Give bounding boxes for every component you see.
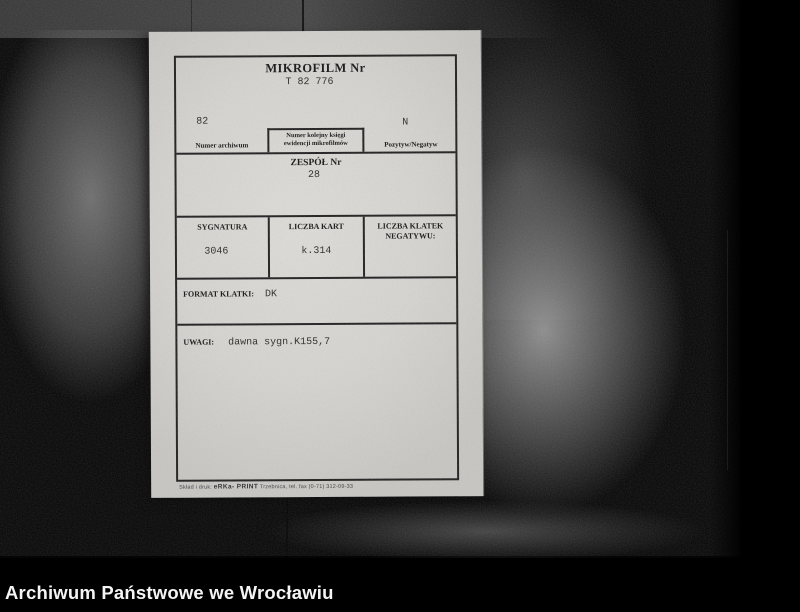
- card-title: MIKROFILM Nr: [176, 56, 455, 76]
- archive-number-value: 82: [196, 117, 208, 128]
- photo-surface: MIKROFILM Nr T 82 776 82 N Numer archiwu…: [0, 0, 800, 612]
- sygnatura-header: SYGNATURA: [177, 217, 268, 232]
- registry-book-label-line2: ewidencji mikrofilmów: [284, 140, 348, 147]
- film-background-right-black: [710, 0, 800, 612]
- liczba-klatek-header-line1: LICZBA KLATEK: [377, 221, 443, 230]
- printer-note-rest: Trzebnica, tel. fax (0-71) 312-09-33: [260, 484, 353, 490]
- archive-caption: Archiwum Państwowe we Wrocławiu: [5, 582, 334, 604]
- zespol-section: ZESPÓŁ Nr 28: [176, 151, 455, 215]
- positive-negative-value: N: [402, 118, 408, 129]
- film-scratch: [302, 0, 304, 32]
- format-klatki-label: FORMAT KLATKI:: [183, 289, 254, 298]
- zespol-value: 28: [175, 169, 454, 181]
- liczba-klatek-cell: LICZBA KLATEK NEGATYWU:: [365, 216, 456, 276]
- liczba-klatek-header: LICZBA KLATEK NEGATYWU:: [365, 216, 456, 241]
- sygnatura-value: 3046: [171, 246, 262, 257]
- zespol-label: ZESPÓŁ Nr: [176, 157, 455, 168]
- printer-note-brand: eRKa- PRINT: [214, 483, 259, 490]
- uwagi-value: dawna sygn.K155,7: [228, 337, 330, 349]
- archive-number-label: Numer archiwum: [176, 141, 267, 149]
- card-frame: MIKROFILM Nr T 82 776 82 N Numer archiwu…: [174, 54, 459, 481]
- sygnatura-cell: SYGNATURA 3046: [177, 217, 268, 277]
- printer-note-prefix: Skład i druk:: [179, 485, 212, 491]
- uwagi-section: UWAGI: dawna sygn.K155,7: [177, 322, 457, 479]
- liczba-klatek-header-line2: NEGATYWU:: [385, 231, 435, 240]
- format-klatki-value: DK: [265, 289, 277, 300]
- positive-negative-label: Pozytyw/Negatyw: [366, 140, 455, 148]
- film-scratch: [727, 230, 728, 470]
- film-background-right: [468, 40, 758, 540]
- microfilm-card: MIKROFILM Nr T 82 776 82 N Numer archiwu…: [149, 30, 483, 498]
- film-background-right-upper: [468, 0, 718, 320]
- signature-section: SYGNATURA 3046 LICZBA KART k.314 LICZBA …: [177, 214, 456, 277]
- card-header-section: MIKROFILM Nr T 82 776 82 N Numer archiwu…: [176, 56, 455, 152]
- registry-book-label: Numer kolejny księgi ewidencji mikrofilm…: [267, 128, 364, 153]
- film-background-left: [0, 30, 165, 470]
- liczba-kart-cell: LICZBA KART k.314: [268, 217, 365, 278]
- printer-note: Skład i druk: eRKa- PRINT Trzebnica, tel…: [179, 483, 353, 491]
- format-klatki-section: FORMAT KLATKI: DK: [177, 276, 456, 323]
- liczba-kart-header: LICZBA KART: [270, 217, 363, 232]
- caption-bar: Archiwum Państwowe we Wrocławiu: [0, 558, 800, 612]
- registry-book-label-line1: Numer kolejny księgi: [286, 132, 345, 139]
- film-scratch: [191, 0, 192, 32]
- liczba-kart-value: k.314: [270, 246, 363, 257]
- film-background-bottom: [260, 495, 730, 561]
- uwagi-label: UWAGI:: [183, 338, 214, 347]
- microfilm-number: T 82 776: [170, 76, 449, 88]
